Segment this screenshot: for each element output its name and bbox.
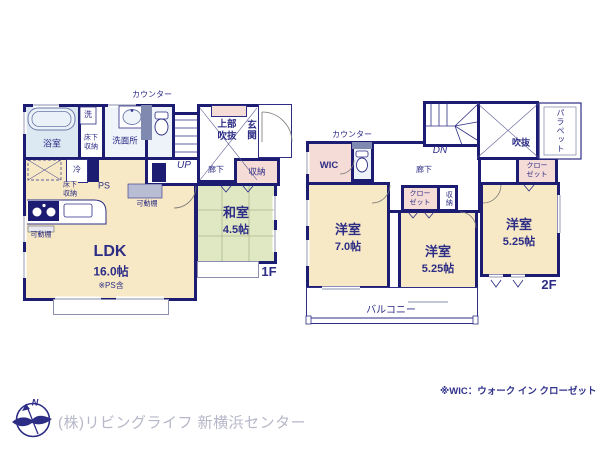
shelf-label-a: 可動棚 (137, 201, 158, 210)
floor1-label: 1F (261, 264, 276, 280)
floor2-label: 2F (541, 277, 556, 293)
washitsu-name: 和室 (223, 205, 249, 221)
floor-plan-sheet: カウンター 浴室 洗 床下収納 洗面所 上部吹抜 玄関 UP 廊下 収納 冷 P… (0, 0, 600, 450)
room-bath (23, 104, 81, 160)
room-b-name: 洋室 (425, 244, 451, 260)
compass-north-letter: N (32, 397, 39, 408)
storage-label-2f: 収納 (444, 191, 453, 207)
underfloor-storage-label-a: 床下収納 (83, 134, 99, 152)
upper-void-label: 上部吹抜 (217, 119, 238, 143)
room-stairs-2f (423, 101, 480, 147)
washer-label: 洗 (84, 110, 92, 120)
counter-label-2f: カウンター (332, 130, 372, 140)
storage-label-1f: 収納 (248, 167, 265, 178)
room-stairs-1f (172, 112, 200, 160)
void-label-2f: 吹抜 (512, 137, 530, 148)
wic-note: ※WIC：ウォーク イン クローゼット (440, 386, 596, 398)
parapet-label: パラペット (555, 109, 565, 154)
room-corridor-1f (145, 157, 200, 186)
wic-label: WIC (320, 160, 338, 172)
underfloor-storage-label-b: 床下収納 (62, 181, 78, 199)
ldk-size: 16.0帖 (93, 265, 128, 280)
room-toilet-1f (145, 104, 175, 160)
shoe-cabinet (211, 105, 247, 117)
hallway-label-2f: 廊下 (416, 165, 432, 175)
room-void-2f (477, 101, 539, 160)
ldk-terrace (53, 299, 169, 315)
counter-label-1f: カウンター (132, 90, 172, 100)
entrance-porch (258, 104, 292, 158)
company-name: (株)リビングライフ 新横浜センター (58, 415, 306, 434)
ldk-name: LDK (94, 242, 127, 262)
room-b-size: 5.25帖 (422, 263, 454, 277)
closet-right-label: クローゼット (525, 162, 549, 180)
ps-label: PS (98, 180, 110, 191)
bath-label: 浴室 (43, 138, 61, 149)
fridge-label: 冷 (73, 165, 81, 175)
ldk-note: ※PS含 (98, 281, 123, 291)
vanity-label: 洗面所 (112, 136, 138, 147)
room-c-size: 5.25帖 (503, 236, 535, 250)
stairs-up-label: UP (177, 160, 191, 173)
room-a-size: 7.0帖 (335, 241, 361, 255)
room-vanity (102, 104, 148, 160)
room-c-name: 洋室 (506, 217, 532, 233)
washitsu-size: 4.5帖 (223, 224, 249, 238)
room-a-name: 洋室 (335, 222, 361, 238)
closet-mid-label: クローゼット (408, 190, 432, 208)
stairs-down-label: DN (433, 145, 447, 158)
washitsu-porch (197, 261, 259, 278)
balcony-label: バルコニー (366, 305, 416, 318)
hallway-label-1f: 廊下 (208, 165, 224, 175)
shelf-label-b: 可動棚 (31, 232, 52, 241)
entrance-label: 玄関 (244, 120, 256, 141)
